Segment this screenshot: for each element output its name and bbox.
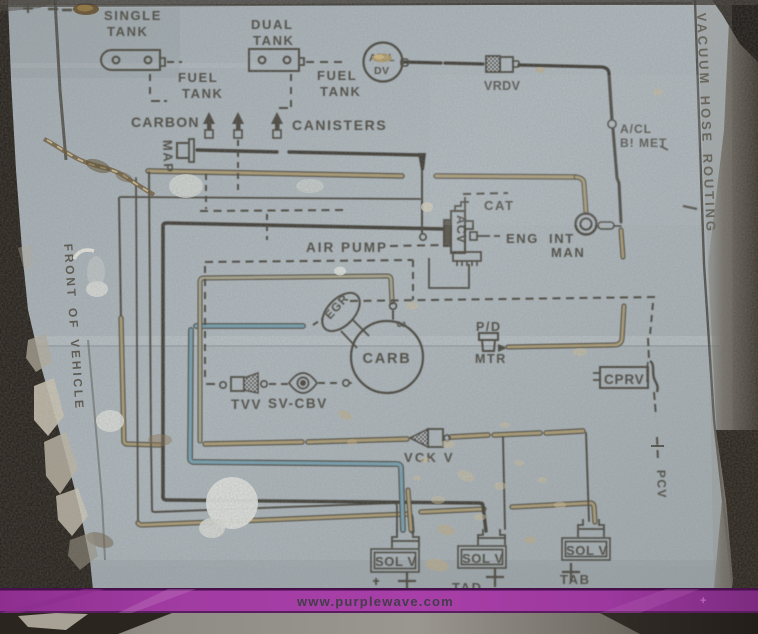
svg-text:www.purplewave.com: www.purplewave.com xyxy=(296,594,454,609)
svg-text:+: + xyxy=(700,595,706,607)
